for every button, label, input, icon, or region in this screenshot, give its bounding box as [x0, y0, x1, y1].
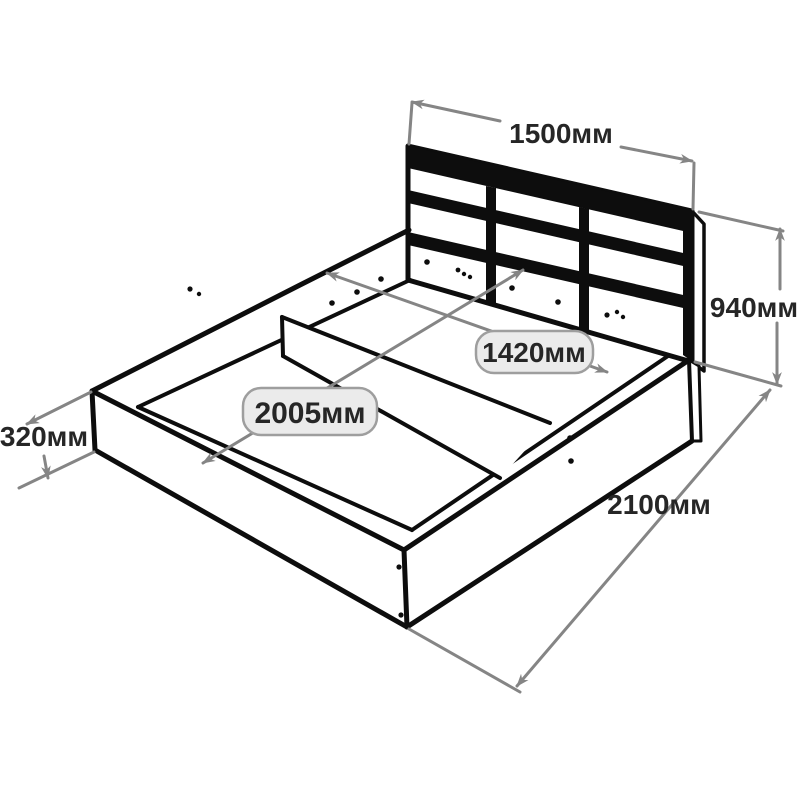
extension-line [19, 452, 94, 488]
overall-height-label: 940мм [710, 292, 798, 323]
extension-line [695, 362, 781, 386]
frame-height-label: 320мм [0, 421, 88, 452]
extension-line [693, 163, 694, 209]
right-face-bottom-edge [407, 441, 692, 627]
extension-line [409, 629, 520, 692]
foot-corner-edge [404, 550, 407, 627]
extension-line [409, 103, 412, 144]
headboard-width-label: 1500мм [509, 118, 613, 149]
headboard-vertical-divider-right [579, 207, 589, 332]
inner-width-label: 1420мм [482, 337, 586, 368]
left-face-bottom-edge [95, 450, 407, 627]
dimension-line [27, 392, 91, 424]
inner-length-label: 2005мм [254, 397, 365, 430]
headboard-right-post [683, 208, 693, 362]
diagram-canvas: 1500мм 940мм 320мм 2100мм 1420мм 2005мм [0, 0, 800, 795]
dimension-line [621, 147, 692, 161]
overall-length-label: 2100мм [607, 489, 711, 520]
extension-line [699, 212, 783, 231]
bed-dimension-diagram: 1500мм 940мм 320мм 2100мм 1420мм 2005мм [0, 0, 800, 795]
dimension-line [412, 102, 500, 121]
